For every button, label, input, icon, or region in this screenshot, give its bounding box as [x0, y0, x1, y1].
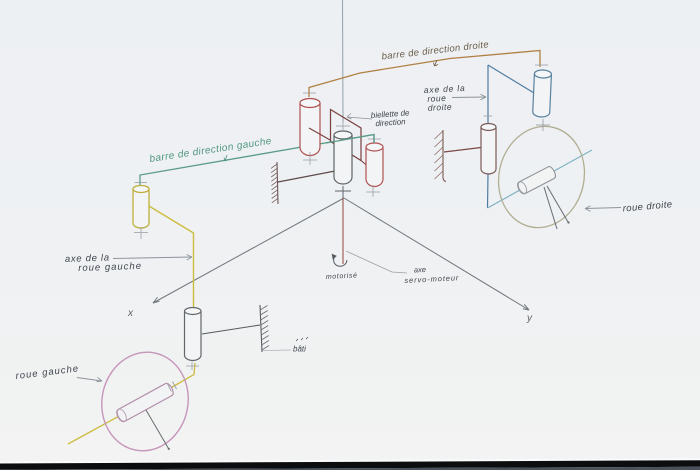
svg-text:roue gauche: roue gauche [78, 261, 142, 274]
svg-text:x: x [127, 308, 134, 319]
svg-text:droite: droite [428, 102, 453, 113]
svg-text:axe: axe [414, 265, 427, 275]
svg-text:bâti: bâti [293, 345, 306, 354]
svg-text:y: y [526, 313, 533, 324]
